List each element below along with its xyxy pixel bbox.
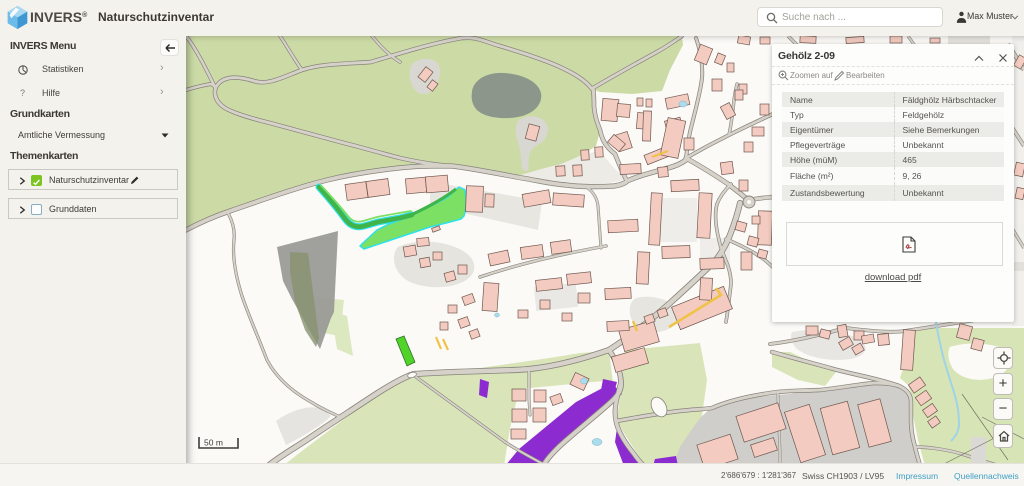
svg-text:50 m: 50 m [204, 438, 223, 448]
